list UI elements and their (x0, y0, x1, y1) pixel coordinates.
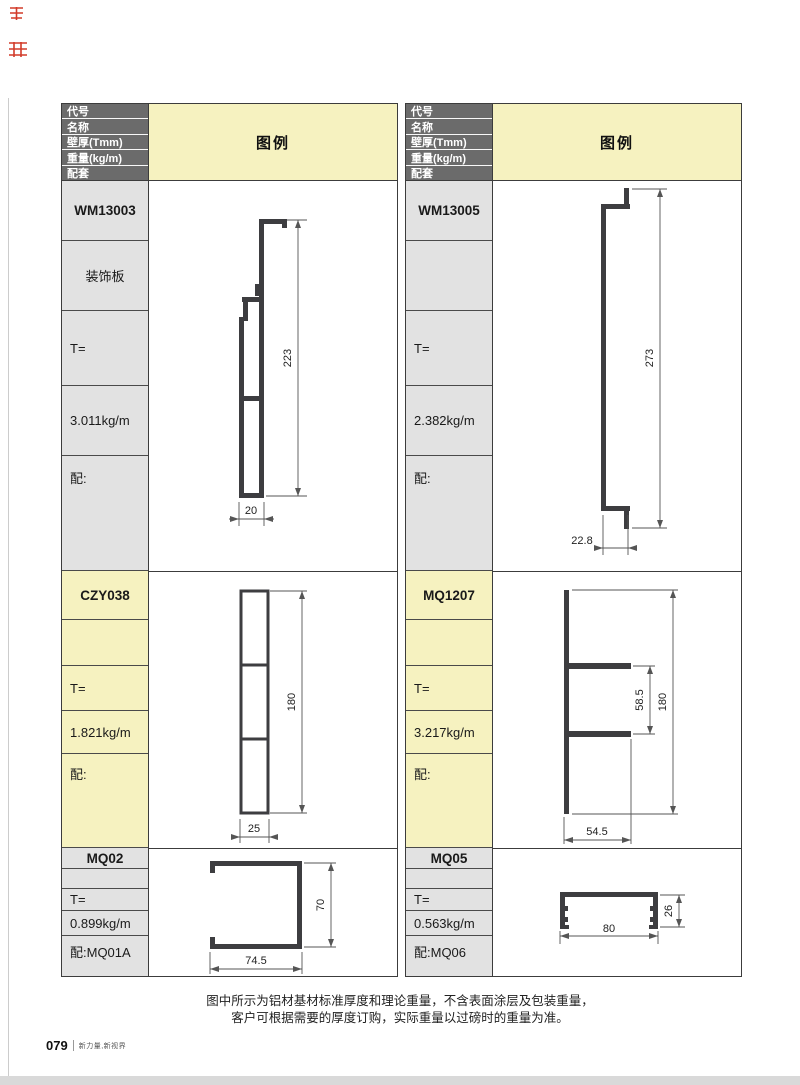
footer-divider (73, 1040, 74, 1051)
profile-shape (210, 861, 302, 949)
name-cell (62, 620, 148, 666)
dimension-label-width: 74.5 (245, 955, 266, 967)
name-cell (406, 620, 492, 666)
footer-brand-text: 新力量,新视界 (79, 1041, 126, 1051)
footnote-line-1: 图中所示为铝材基材标准厚度和理论重量，不含表面涂层及包装重量， (0, 993, 800, 1010)
diagram-wm13005: 273 22.8 (492, 181, 741, 571)
thickness-cell: T= (62, 666, 148, 711)
header-row-match: 配套 (406, 166, 492, 181)
code-cell: MQ02 (62, 848, 148, 869)
dimension-label-width: 22.8 (571, 535, 592, 547)
dimension-label-height: 273 (644, 349, 656, 367)
code-cell: CZY038 (62, 571, 148, 620)
profile-shape (601, 188, 630, 529)
header-row-weight: 重量(kg/m) (406, 150, 492, 166)
legend-header-cell: 图例 (148, 104, 397, 181)
footnote: 图中所示为铝材基材标准厚度和理论重量，不含表面涂层及包装重量， 客户可根据需要的… (0, 993, 800, 1027)
match-cell: 配:MQ06 (406, 936, 492, 976)
name-cell (62, 869, 148, 889)
thickness-cell: T= (406, 311, 492, 386)
profile-table-right: 代号 名称 壁厚(Tmm) 重量(kg/m) 配套 图例 WM13005 T= … (405, 103, 742, 977)
weight-cell: 0.563kg/m (406, 911, 492, 936)
dimension-label-width: 80 (603, 923, 615, 935)
red-print-marks (7, 5, 31, 61)
diagram-mq05: 80 26 (492, 848, 741, 976)
page-footer: 079 新力量,新视界 (46, 1038, 126, 1053)
header-row-match: 配套 (62, 166, 148, 181)
diagram-mq1207: 58.5 180 54.5 (492, 571, 741, 848)
profile-shape (564, 590, 631, 814)
profile-table-left: 代号 名称 壁厚(Tmm) 重量(kg/m) 配套 图例 WM13003 装饰板… (61, 103, 398, 977)
header-row-name: 名称 (406, 119, 492, 135)
weight-cell: 2.382kg/m (406, 386, 492, 456)
diagram-czy038: 180 25 (148, 571, 397, 848)
header-row-thickness: 壁厚(Tmm) (62, 135, 148, 150)
page-number: 079 (46, 1038, 68, 1053)
weight-cell: 1.821kg/m (62, 711, 148, 754)
dimension-label-height: 26 (663, 905, 675, 917)
match-cell: 配: (406, 456, 492, 571)
header-row-code: 代号 (62, 104, 148, 119)
dimension-lines (564, 590, 678, 844)
dimension-label-height: 180 (286, 693, 298, 711)
name-cell: 装饰板 (62, 241, 148, 311)
code-cell: MQ05 (406, 848, 492, 869)
match-cell: 配:MQ01A (62, 936, 148, 976)
dimension-label-height: 223 (282, 349, 294, 367)
page-crease-line (8, 98, 9, 1080)
weight-cell: 3.217kg/m (406, 711, 492, 754)
header-row-thickness: 壁厚(Tmm) (406, 135, 492, 150)
page-bottom-edge (0, 1076, 800, 1085)
code-cell: WM13003 (62, 181, 148, 241)
dimension-label-width: 20 (245, 505, 257, 517)
diagram-mq02: 70 74.5 (148, 848, 397, 976)
match-cell: 配: (62, 754, 148, 848)
thickness-cell: T= (406, 889, 492, 911)
diagram-wm13003: 223 20 (148, 181, 397, 571)
catalog-page: 代号 名称 壁厚(Tmm) 重量(kg/m) 配套 图例 WM13003 装饰板… (0, 0, 800, 1085)
name-cell (406, 241, 492, 311)
weight-cell: 0.899kg/m (62, 911, 148, 936)
header-row-code: 代号 (406, 104, 492, 119)
dimension-label-inner: 58.5 (634, 689, 646, 710)
match-cell: 配: (406, 754, 492, 848)
footnote-line-2: 客户可根据需要的厚度订购，实际重量以过磅时的重量为准。 (0, 1010, 800, 1027)
profile-shape (239, 219, 287, 498)
dimension-arrows (210, 863, 334, 972)
thickness-cell: T= (62, 311, 148, 386)
dimension-label-width: 54.5 (586, 826, 607, 838)
legend-header-cell: 图例 (492, 104, 741, 181)
name-cell (406, 869, 492, 889)
dimension-label-height: 180 (657, 693, 669, 711)
thickness-cell: T= (62, 889, 148, 911)
weight-cell: 3.011kg/m (62, 386, 148, 456)
header-row-weight: 重量(kg/m) (62, 150, 148, 166)
dimension-arrows (564, 590, 676, 843)
dimension-lines (560, 895, 685, 944)
code-cell: MQ1207 (406, 571, 492, 620)
dimension-lines (210, 863, 336, 974)
code-cell: WM13005 (406, 181, 492, 241)
dimension-label-height: 70 (315, 899, 327, 911)
header-row-name: 名称 (62, 119, 148, 135)
thickness-cell: T= (406, 666, 492, 711)
profile-shape (241, 591, 268, 813)
dimension-label-width: 25 (248, 823, 260, 835)
match-cell: 配: (62, 456, 148, 571)
